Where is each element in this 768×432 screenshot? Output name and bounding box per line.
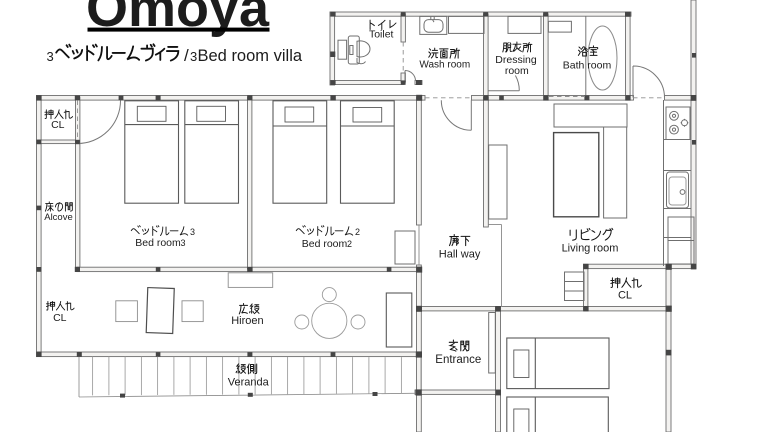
svg-text:room: room [505, 65, 529, 77]
svg-text:2: 2 [347, 239, 352, 249]
svg-text:Wash room: Wash room [419, 60, 470, 71]
svg-text:Entrance: Entrance [435, 354, 481, 366]
svg-text:Omoya: Omoya [86, 0, 270, 38]
svg-text:2: 2 [355, 227, 360, 237]
svg-text:Toilet: Toilet [369, 28, 394, 40]
svg-text:CL: CL [618, 290, 632, 302]
svg-text:Hall way: Hall way [439, 249, 481, 261]
svg-text:/: / [184, 46, 189, 65]
svg-text:Alcove: Alcove [44, 212, 73, 223]
svg-text:3: 3 [190, 227, 195, 237]
svg-text:Veranda: Veranda [228, 376, 270, 388]
svg-text:3: 3 [181, 238, 186, 248]
svg-text:CL: CL [51, 119, 65, 131]
svg-text:Bath room: Bath room [563, 59, 612, 71]
svg-text:3: 3 [190, 49, 197, 64]
svg-text:3: 3 [47, 49, 54, 64]
svg-text:Hiroen: Hiroen [231, 315, 263, 327]
svg-text:Living room: Living room [562, 242, 619, 254]
svg-text:Bed room: Bed room [302, 238, 348, 250]
svg-text:Bed room villa: Bed room villa [198, 47, 303, 65]
svg-text:Bed room: Bed room [135, 237, 181, 249]
svg-text:CL: CL [53, 312, 67, 324]
